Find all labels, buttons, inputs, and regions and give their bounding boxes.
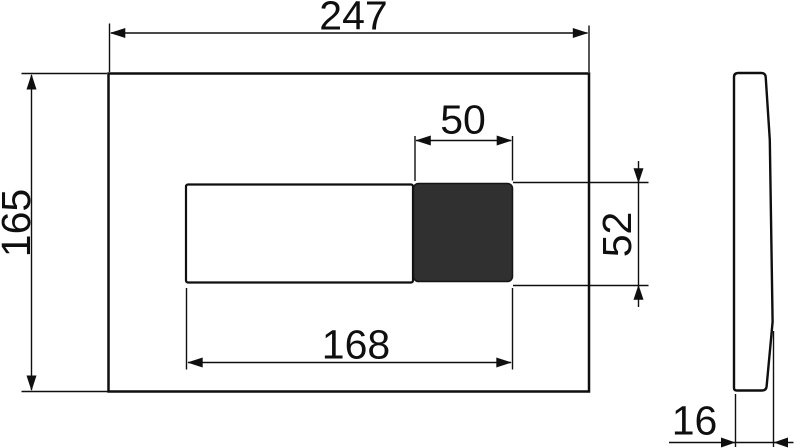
svg-text:16: 16 xyxy=(672,398,718,444)
svg-text:247: 247 xyxy=(319,0,387,39)
svg-text:52: 52 xyxy=(594,212,640,258)
svg-text:50: 50 xyxy=(440,97,486,143)
svg-text:165: 165 xyxy=(0,189,39,257)
svg-text:168: 168 xyxy=(322,322,390,368)
